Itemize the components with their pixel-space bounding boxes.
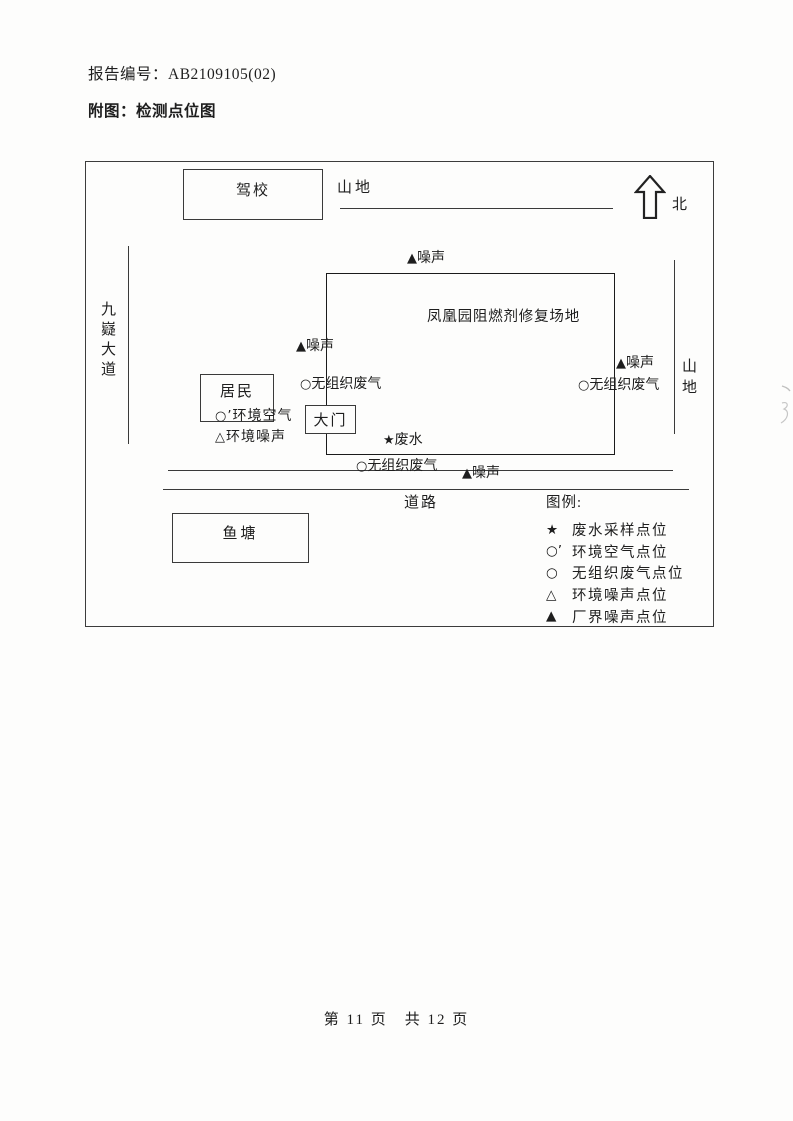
mountain-right-boundary-line: [674, 260, 675, 434]
circle-icon: ○: [578, 378, 589, 393]
legend-item-label: 环境噪声点位: [572, 584, 668, 605]
gate-box: 大门: [305, 405, 356, 434]
legend-title: 图例:: [546, 491, 684, 512]
legend-item-label: 环境空气点位: [572, 541, 668, 562]
filled-triangle-icon: ▲: [616, 356, 626, 371]
star-icon: ★: [383, 433, 395, 448]
filled-triangle-icon: ▲: [462, 466, 472, 481]
boundary-noise-point-right: ▲噪声: [616, 352, 654, 372]
legend-item-wastewater: ★ 废水采样点位: [546, 519, 684, 541]
north-arrow-icon: [634, 175, 666, 219]
star-icon: ★: [546, 522, 572, 538]
figure-title: 附图：检测点位图: [88, 99, 216, 121]
site-boundary: [326, 273, 615, 455]
legend-item-env-noise: △ 环境噪声点位: [546, 584, 684, 606]
driving-school-box: 驾校: [183, 169, 323, 220]
fish-pond-box: 鱼塘: [172, 513, 309, 563]
ambient-air-point: ○’环境空气: [215, 405, 292, 425]
marker-label: 废水: [395, 433, 423, 448]
hollow-triangle-icon: △: [215, 430, 226, 445]
hollow-triangle-icon: △: [546, 587, 572, 603]
site-name-label: 凤凰园阻燃剂修复场地: [427, 305, 580, 326]
legend-item-fugitive-gas: ○ 无组织废气点位: [546, 562, 684, 584]
legend: 图例: ★ 废水采样点位 ○’ 环境空气点位 ○ 无组织废气点位 △ 环境噪声点…: [546, 491, 684, 627]
boundary-noise-point-road: ▲噪声: [462, 462, 500, 482]
circle-icon: ○: [546, 565, 572, 581]
marker-label: 环境噪声: [226, 430, 286, 445]
circle-icon: ○: [356, 459, 367, 474]
legend-item-label: 无组织废气点位: [572, 562, 684, 583]
filled-triangle-icon: ▲: [407, 251, 417, 266]
circle-prime-icon: ○’: [546, 543, 572, 559]
road-line-lower: [163, 489, 689, 490]
boundary-noise-point-top: ▲噪声: [407, 247, 445, 267]
marker-label: 噪声: [626, 356, 654, 371]
avenue-label: 九嶷大道: [97, 301, 118, 381]
marker-label: 噪声: [417, 251, 445, 266]
fish-pond-label: 鱼塘: [222, 522, 258, 562]
driving-school-label: 驾校: [236, 179, 270, 219]
marker-label: 噪声: [472, 466, 500, 481]
marker-label: 环境空气: [232, 409, 292, 424]
mountain-right-label: 山地: [678, 358, 699, 400]
legend-item-ambient-air: ○’ 环境空气点位: [546, 541, 684, 563]
wastewater-sampling-point: ★废水: [383, 429, 423, 449]
fugitive-gas-point-left: ○无组织废气: [300, 373, 381, 393]
boundary-noise-point-left: ▲噪声: [296, 335, 334, 355]
mountain-top-boundary-line: [340, 208, 613, 209]
monitoring-point-map: 驾校 山地 北 九嶷大道 凤凰园阻燃剂修复场地 ▲噪声 ▲噪声 ▲噪声 ○无组织…: [85, 161, 714, 627]
legend-item-label: 废水采样点位: [572, 519, 668, 540]
legend-item-label: 厂界噪声点位: [572, 606, 668, 627]
page-footer: 第 11 页 共 12 页: [0, 1008, 793, 1029]
north-label: 北: [672, 193, 687, 214]
avenue-boundary-line: [128, 246, 129, 444]
mountain-top-label: 山地: [337, 176, 373, 197]
environmental-noise-point: △环境噪声: [215, 426, 286, 446]
fugitive-gas-point-right: ○无组织废气: [578, 374, 659, 394]
gate-label: 大门: [313, 409, 347, 430]
scanned-report-page: { "page": { "report_label": "报告编号：AB2109…: [0, 0, 793, 1121]
pen-mark-scan-artifact: [775, 383, 793, 433]
circle-icon: ○: [300, 377, 311, 392]
marker-label: 无组织废气: [311, 377, 381, 392]
marker-label: 无组织废气: [589, 378, 659, 393]
legend-item-boundary-noise: ▲ 厂界噪声点位: [546, 605, 684, 627]
road-label: 道路: [404, 491, 438, 512]
marker-label: 无组织废气: [367, 459, 437, 474]
filled-triangle-icon: ▲: [296, 339, 306, 354]
marker-label: 噪声: [306, 339, 334, 354]
fugitive-gas-point-bottom: ○无组织废气: [356, 455, 437, 475]
report-number: 报告编号：AB2109105(02): [88, 62, 276, 84]
filled-triangle-icon: ▲: [546, 608, 572, 624]
circle-prime-icon: ○’: [215, 409, 232, 424]
